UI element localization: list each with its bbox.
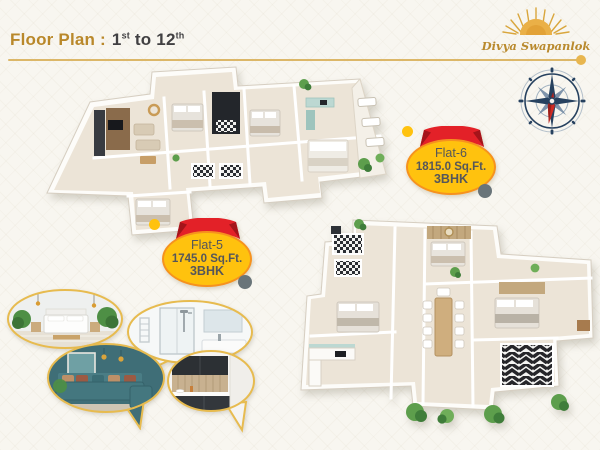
flat6-bed-top [431, 242, 465, 266]
flat-name: Flat-6 [435, 147, 467, 161]
flat-name: Flat-5 [191, 239, 223, 253]
flat5-gray-dot [238, 275, 252, 289]
flat6-bed-left [337, 302, 379, 332]
page-title: Floor Plan :1st to 12th [10, 30, 185, 50]
flat6-bathroom-1 [333, 234, 363, 254]
kitchen-photo-bubble [166, 350, 260, 434]
sun-rays-icon [480, 4, 592, 38]
flat-config: 3BHK [190, 265, 224, 279]
flat6-gray-dot [478, 184, 492, 198]
brand-logo: Divya Swapanlok [480, 4, 592, 56]
flat6-utility-box [577, 320, 590, 331]
flat5-bed-1 [172, 104, 203, 131]
flat6-yellow-dot [402, 126, 413, 137]
gold-divider-line [8, 59, 580, 61]
flat-config: 3BHK [434, 173, 468, 187]
brand-name: Divya Swapanlok [480, 39, 592, 53]
flat6-bed-right [495, 282, 545, 328]
floor-plan-flyer: Floor Plan :1st to 12th Divya Swapanlok [0, 0, 600, 450]
flat5-bed-2 [250, 110, 280, 136]
flat5-tv-unit [94, 110, 105, 156]
page-title-prefix: Floor Plan : [10, 30, 106, 49]
flat5-bed-4 [308, 140, 348, 172]
floor-range: 1st to 12th [112, 30, 185, 49]
flat6-chevron-rug [501, 344, 553, 386]
living-room-photo-bubble [46, 342, 168, 430]
flat6-bathroom-2 [335, 260, 361, 276]
compass-icon [517, 66, 587, 136]
bedroom-photo-bubble [6, 289, 124, 349]
flat6-floor-plan-render [295, 208, 600, 428]
flat5-yellow-dot [149, 219, 160, 230]
flat6-headboard-wall [427, 226, 471, 239]
gold-divider-dot [576, 55, 586, 65]
